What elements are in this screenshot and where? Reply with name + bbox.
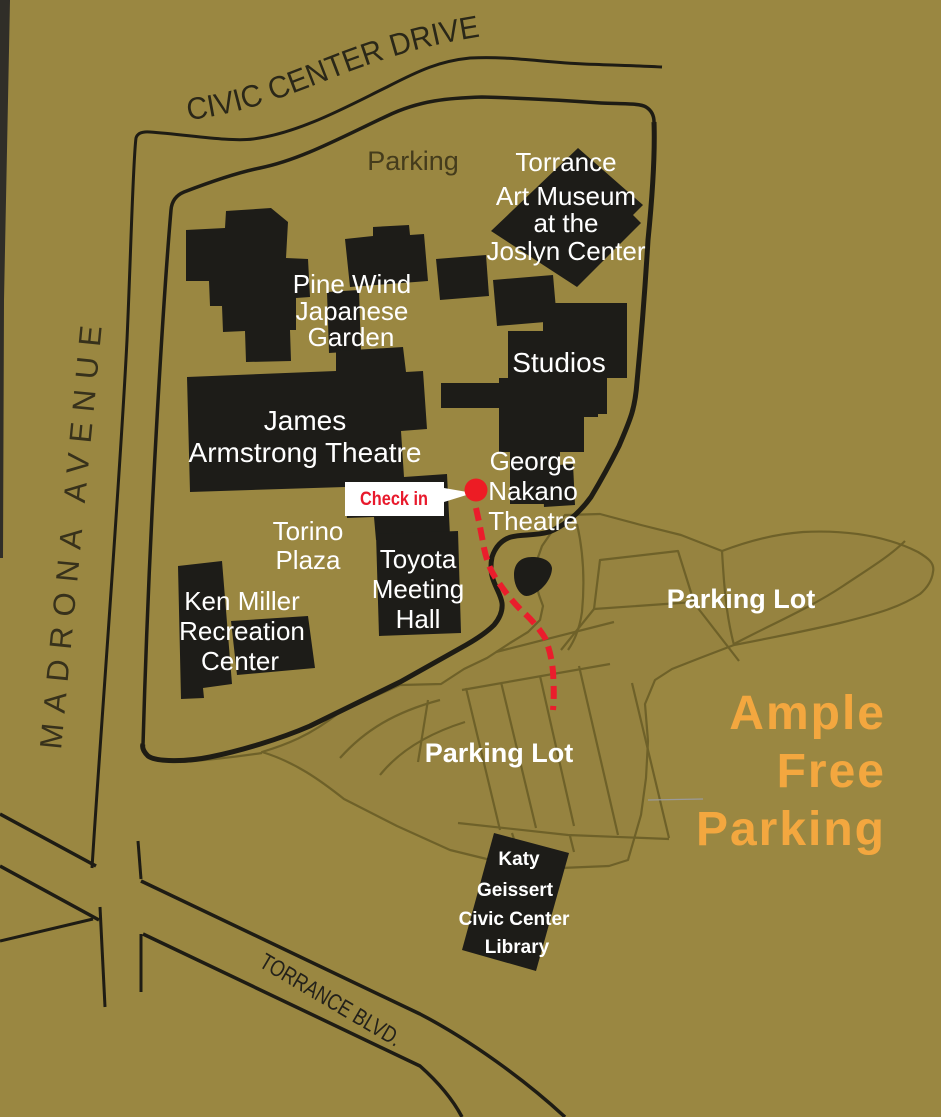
svg-text:Civic Center: Civic Center xyxy=(459,909,570,930)
svg-text:Toyota: Toyota xyxy=(380,544,457,574)
svg-text:Joslyn Center: Joslyn Center xyxy=(487,236,646,266)
svg-text:Center: Center xyxy=(201,646,279,676)
svg-text:Geissert: Geissert xyxy=(477,880,554,901)
svg-text:Meeting: Meeting xyxy=(372,574,465,604)
svg-text:Torrance: Torrance xyxy=(515,147,616,177)
svg-text:Studios: Studios xyxy=(512,347,605,378)
svg-text:Parking: Parking xyxy=(367,146,459,176)
svg-text:Theatre: Theatre xyxy=(488,506,578,536)
svg-text:Torino: Torino xyxy=(273,516,344,546)
svg-text:Parking Lot: Parking Lot xyxy=(667,584,816,614)
svg-text:Free: Free xyxy=(777,745,886,798)
svg-text:Art Museum: Art Museum xyxy=(496,181,636,211)
svg-text:Garden: Garden xyxy=(308,322,395,352)
svg-text:Parking Lot: Parking Lot xyxy=(425,738,574,768)
svg-text:Library: Library xyxy=(485,937,550,958)
svg-text:Plaza: Plaza xyxy=(275,545,341,575)
svg-text:Nakano: Nakano xyxy=(488,476,578,506)
svg-text:Check in: Check in xyxy=(360,488,428,509)
svg-text:Hall: Hall xyxy=(396,604,441,634)
svg-text:Ken Miller: Ken Miller xyxy=(184,586,300,616)
svg-text:Katy: Katy xyxy=(498,849,540,870)
svg-text:Ample: Ample xyxy=(729,687,886,740)
svg-text:Armstrong Theatre: Armstrong Theatre xyxy=(189,437,422,468)
svg-text:Recreation: Recreation xyxy=(179,616,305,646)
svg-text:Parking: Parking xyxy=(696,803,886,856)
svg-text:at the: at the xyxy=(533,208,598,238)
svg-text:George: George xyxy=(490,446,577,476)
svg-text:James: James xyxy=(264,405,346,436)
svg-text:Pine Wind: Pine Wind xyxy=(293,269,412,299)
